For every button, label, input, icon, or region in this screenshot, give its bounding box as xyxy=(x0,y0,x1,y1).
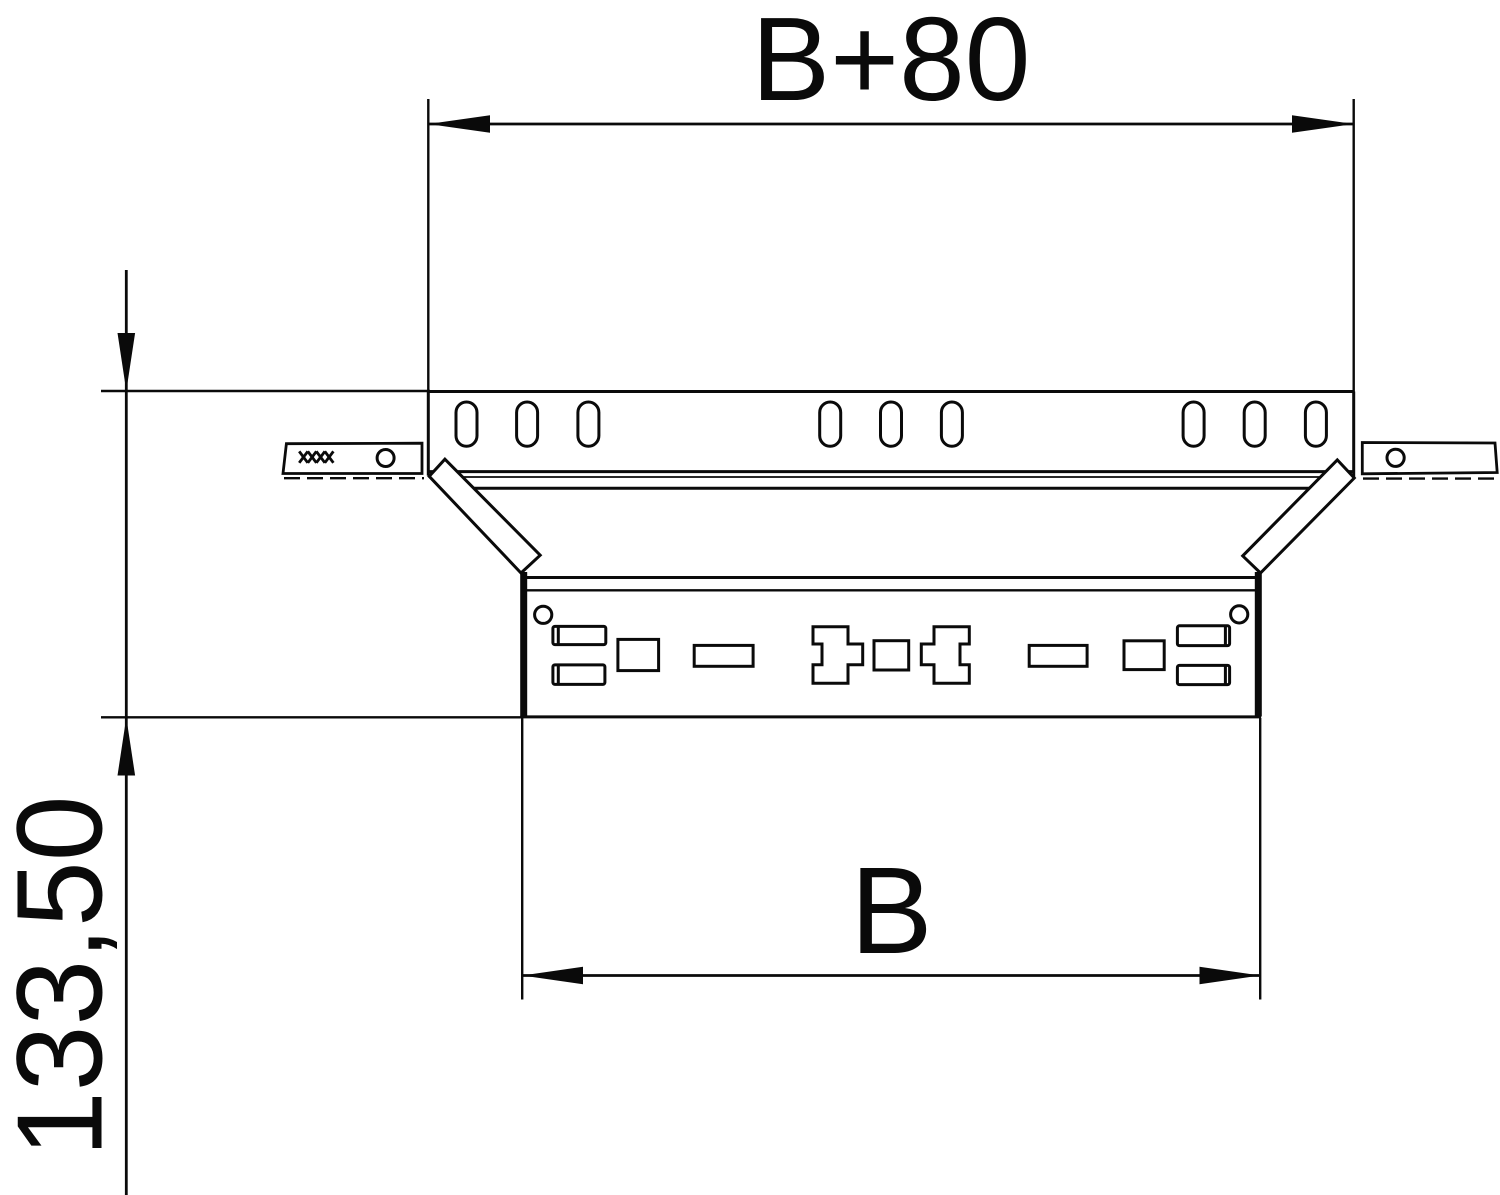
svg-text:133,50: 133,50 xyxy=(0,796,128,1158)
svg-text:B+80: B+80 xyxy=(751,0,1030,126)
svg-text:B: B xyxy=(850,842,932,980)
